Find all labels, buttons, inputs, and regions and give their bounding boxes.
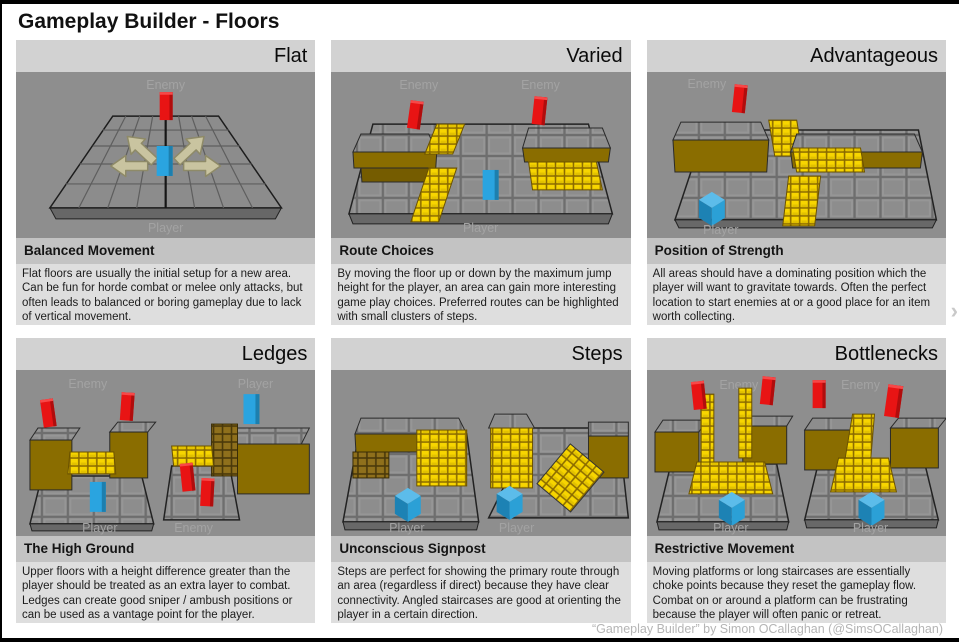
panel-title: Advantageous <box>810 45 938 68</box>
panel-steps: Steps <box>331 338 630 623</box>
player-label: Player <box>703 223 738 237</box>
gold-pillar-right <box>110 422 156 478</box>
player-label: Player <box>82 521 117 535</box>
illustration-bottlenecks: Enemy Enemy <box>647 370 946 536</box>
high-ledge-right <box>230 428 310 494</box>
player-block <box>157 146 173 176</box>
scene-bottlenecks: Enemy Enemy <box>647 370 946 536</box>
panel-flat: Flat Enemy Player Balanced Movement <box>16 40 315 325</box>
panel-header: Bottlenecks <box>647 338 946 370</box>
enemy-block <box>120 392 135 421</box>
panel-grid: Flat Enemy Player Balanced Movement <box>2 40 959 623</box>
steps-brown-column <box>212 424 238 476</box>
scene-ledges: Enemy Player <box>16 370 315 536</box>
panel-title: Flat <box>274 45 307 68</box>
player-label: Player <box>148 221 183 235</box>
panel-ledges: Ledges Enemy Player <box>16 338 315 623</box>
panel-title: Bottlenecks <box>835 343 938 366</box>
player-block <box>483 170 499 200</box>
enemy-block <box>532 96 548 125</box>
panel-advantageous: Advantageous Enemy <box>647 40 946 325</box>
steps-ladder <box>738 388 751 458</box>
panel-title: Ledges <box>242 343 308 366</box>
scene-flat: Enemy Player <box>16 72 315 238</box>
page-title: Gameplay Builder - Floors <box>2 4 959 40</box>
panel-title: Steps <box>572 343 623 366</box>
enemy-label: Enemy <box>400 78 440 92</box>
enemy-block <box>160 92 173 120</box>
scene-varied: Enemy Enemy <box>331 72 630 238</box>
credit-text: “Gameplay Builder” by Simon OCallaghan (… <box>592 622 943 636</box>
panel-body-text: Moving platforms or long staircases are … <box>647 562 946 623</box>
panel-body-text: Steps are perfect for showing the primar… <box>331 562 630 623</box>
high-platform <box>673 122 769 172</box>
enemy-label: Enemy <box>521 78 561 92</box>
enemy-label: Enemy <box>687 77 727 91</box>
illustration-flat: Enemy Player <box>16 72 315 238</box>
panel-heading: Balanced Movement <box>16 238 315 264</box>
steps-ramp <box>172 446 214 466</box>
panel-header: Advantageous <box>647 40 946 72</box>
panel-header: Ledges <box>16 338 315 370</box>
panel-body-text: By moving the floor up or down by the ma… <box>331 264 630 325</box>
panel-header: Flat <box>16 40 315 72</box>
raised-platform-right <box>523 128 611 190</box>
mid-ledge <box>790 134 922 172</box>
scene-advantageous: Enemy Player <box>647 72 946 238</box>
enemy-label: Enemy <box>68 377 108 391</box>
panel-bottlenecks: Bottlenecks Enemy Enemy <box>647 338 946 623</box>
panel-body-text: Upper floors with a height difference gr… <box>16 562 315 623</box>
enemy-label: Enemy <box>841 378 881 392</box>
enemy-block <box>884 384 903 418</box>
panel-varied: Varied Enemy Enemy <box>331 40 630 325</box>
panel-header: Steps <box>331 338 630 370</box>
raised-platform-left <box>353 134 437 182</box>
steps-bridge <box>68 452 116 474</box>
illustration-varied: Enemy Enemy <box>331 72 630 238</box>
steps-apron <box>689 462 773 494</box>
steps-large-face <box>417 430 467 486</box>
chevron-right-icon[interactable]: › <box>951 300 958 322</box>
steps-lower <box>782 176 820 226</box>
enemy-label: Enemy <box>146 78 186 92</box>
player-label: Player <box>499 521 534 535</box>
enemy-block <box>732 84 748 113</box>
panel-heading: Unconscious Signpost <box>331 536 630 562</box>
illustration-ledges: Enemy Player <box>16 370 315 536</box>
illustration-steps: Player Player <box>331 370 630 536</box>
enemy-block <box>200 478 214 507</box>
enemy-label: Enemy <box>174 521 214 535</box>
player-block <box>243 394 259 424</box>
panel-title: Varied <box>566 45 622 68</box>
steps-brown-cluster <box>353 452 389 478</box>
panel-heading: Route Choices <box>331 238 630 264</box>
steps-apron <box>830 458 896 492</box>
enemy-block <box>812 380 825 408</box>
player-label: Player <box>238 377 273 391</box>
enemy-block <box>691 381 707 410</box>
illustration-advantageous: Enemy Player <box>647 72 946 238</box>
enemy-block <box>759 376 775 405</box>
panel-heading: The High Ground <box>16 536 315 562</box>
gold-platform-right2 <box>890 418 946 468</box>
player-label: Player <box>463 221 498 235</box>
panel-body-text: All areas should have a dominating posit… <box>647 264 946 325</box>
player-label: Player <box>852 521 887 535</box>
player-label: Player <box>713 521 748 535</box>
scene-steps: Player Player <box>331 370 630 536</box>
panel-header: Varied <box>331 40 630 72</box>
tall-block-left <box>489 414 535 488</box>
enemy-block <box>40 398 57 427</box>
panel-heading: Restrictive Movement <box>647 536 946 562</box>
player-label: Player <box>389 521 424 535</box>
player-block <box>90 482 106 512</box>
panel-body-text: Flat floors are usually the initial setu… <box>16 264 315 325</box>
panel-heading: Position of Strength <box>647 238 946 264</box>
